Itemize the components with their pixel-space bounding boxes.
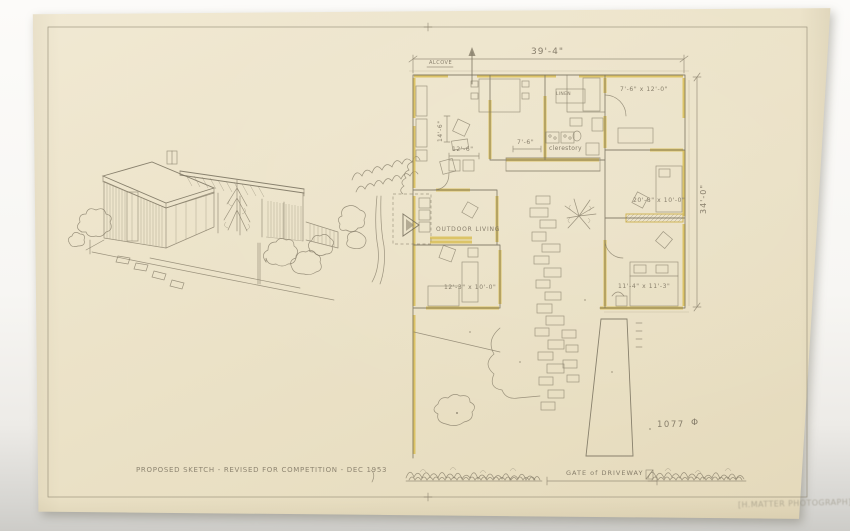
- dim-overall-depth-label: 34'-0": [699, 184, 708, 214]
- title-inscription: PROPOSED SKETCH - REVISED FOR COMPETITIO…: [136, 466, 387, 474]
- dim-overall-width-label: 39'-4": [531, 47, 564, 57]
- lot-number-label: 1077: [657, 420, 685, 430]
- outdoor-living-label: OUTDOOR LIVING: [436, 226, 500, 233]
- room-bedroom-e-label: 20'-8" x 10'-0": [633, 197, 685, 204]
- linen-label: LINEN: [556, 92, 571, 97]
- scanned-drawing-photo: { "inscriptions": { "title": "PROPOSED S…: [0, 0, 850, 531]
- lot-symbol: Φ: [691, 418, 699, 428]
- alcove-label: ALCOVE: [429, 60, 452, 66]
- gate-label: GATE of DRIVEWAY: [566, 469, 643, 477]
- room-bedroom-ne-label: 7'-6" x 12'-0": [620, 86, 668, 93]
- room-bedroom-se-label: 11'-4" x 11'-3": [618, 283, 670, 290]
- dim-living-label: 14'-6": [437, 120, 444, 142]
- paper-surface: [28, 5, 832, 522]
- room-study-label: 12'-3" x 10'-0": [444, 284, 496, 291]
- dim-hall-label: 7'-6": [517, 139, 534, 146]
- tracing-paper-sheet: [0, 0, 850, 531]
- clerestory-label: clerestory: [549, 145, 582, 152]
- dim-kitchen-label: 12'-6": [452, 146, 474, 153]
